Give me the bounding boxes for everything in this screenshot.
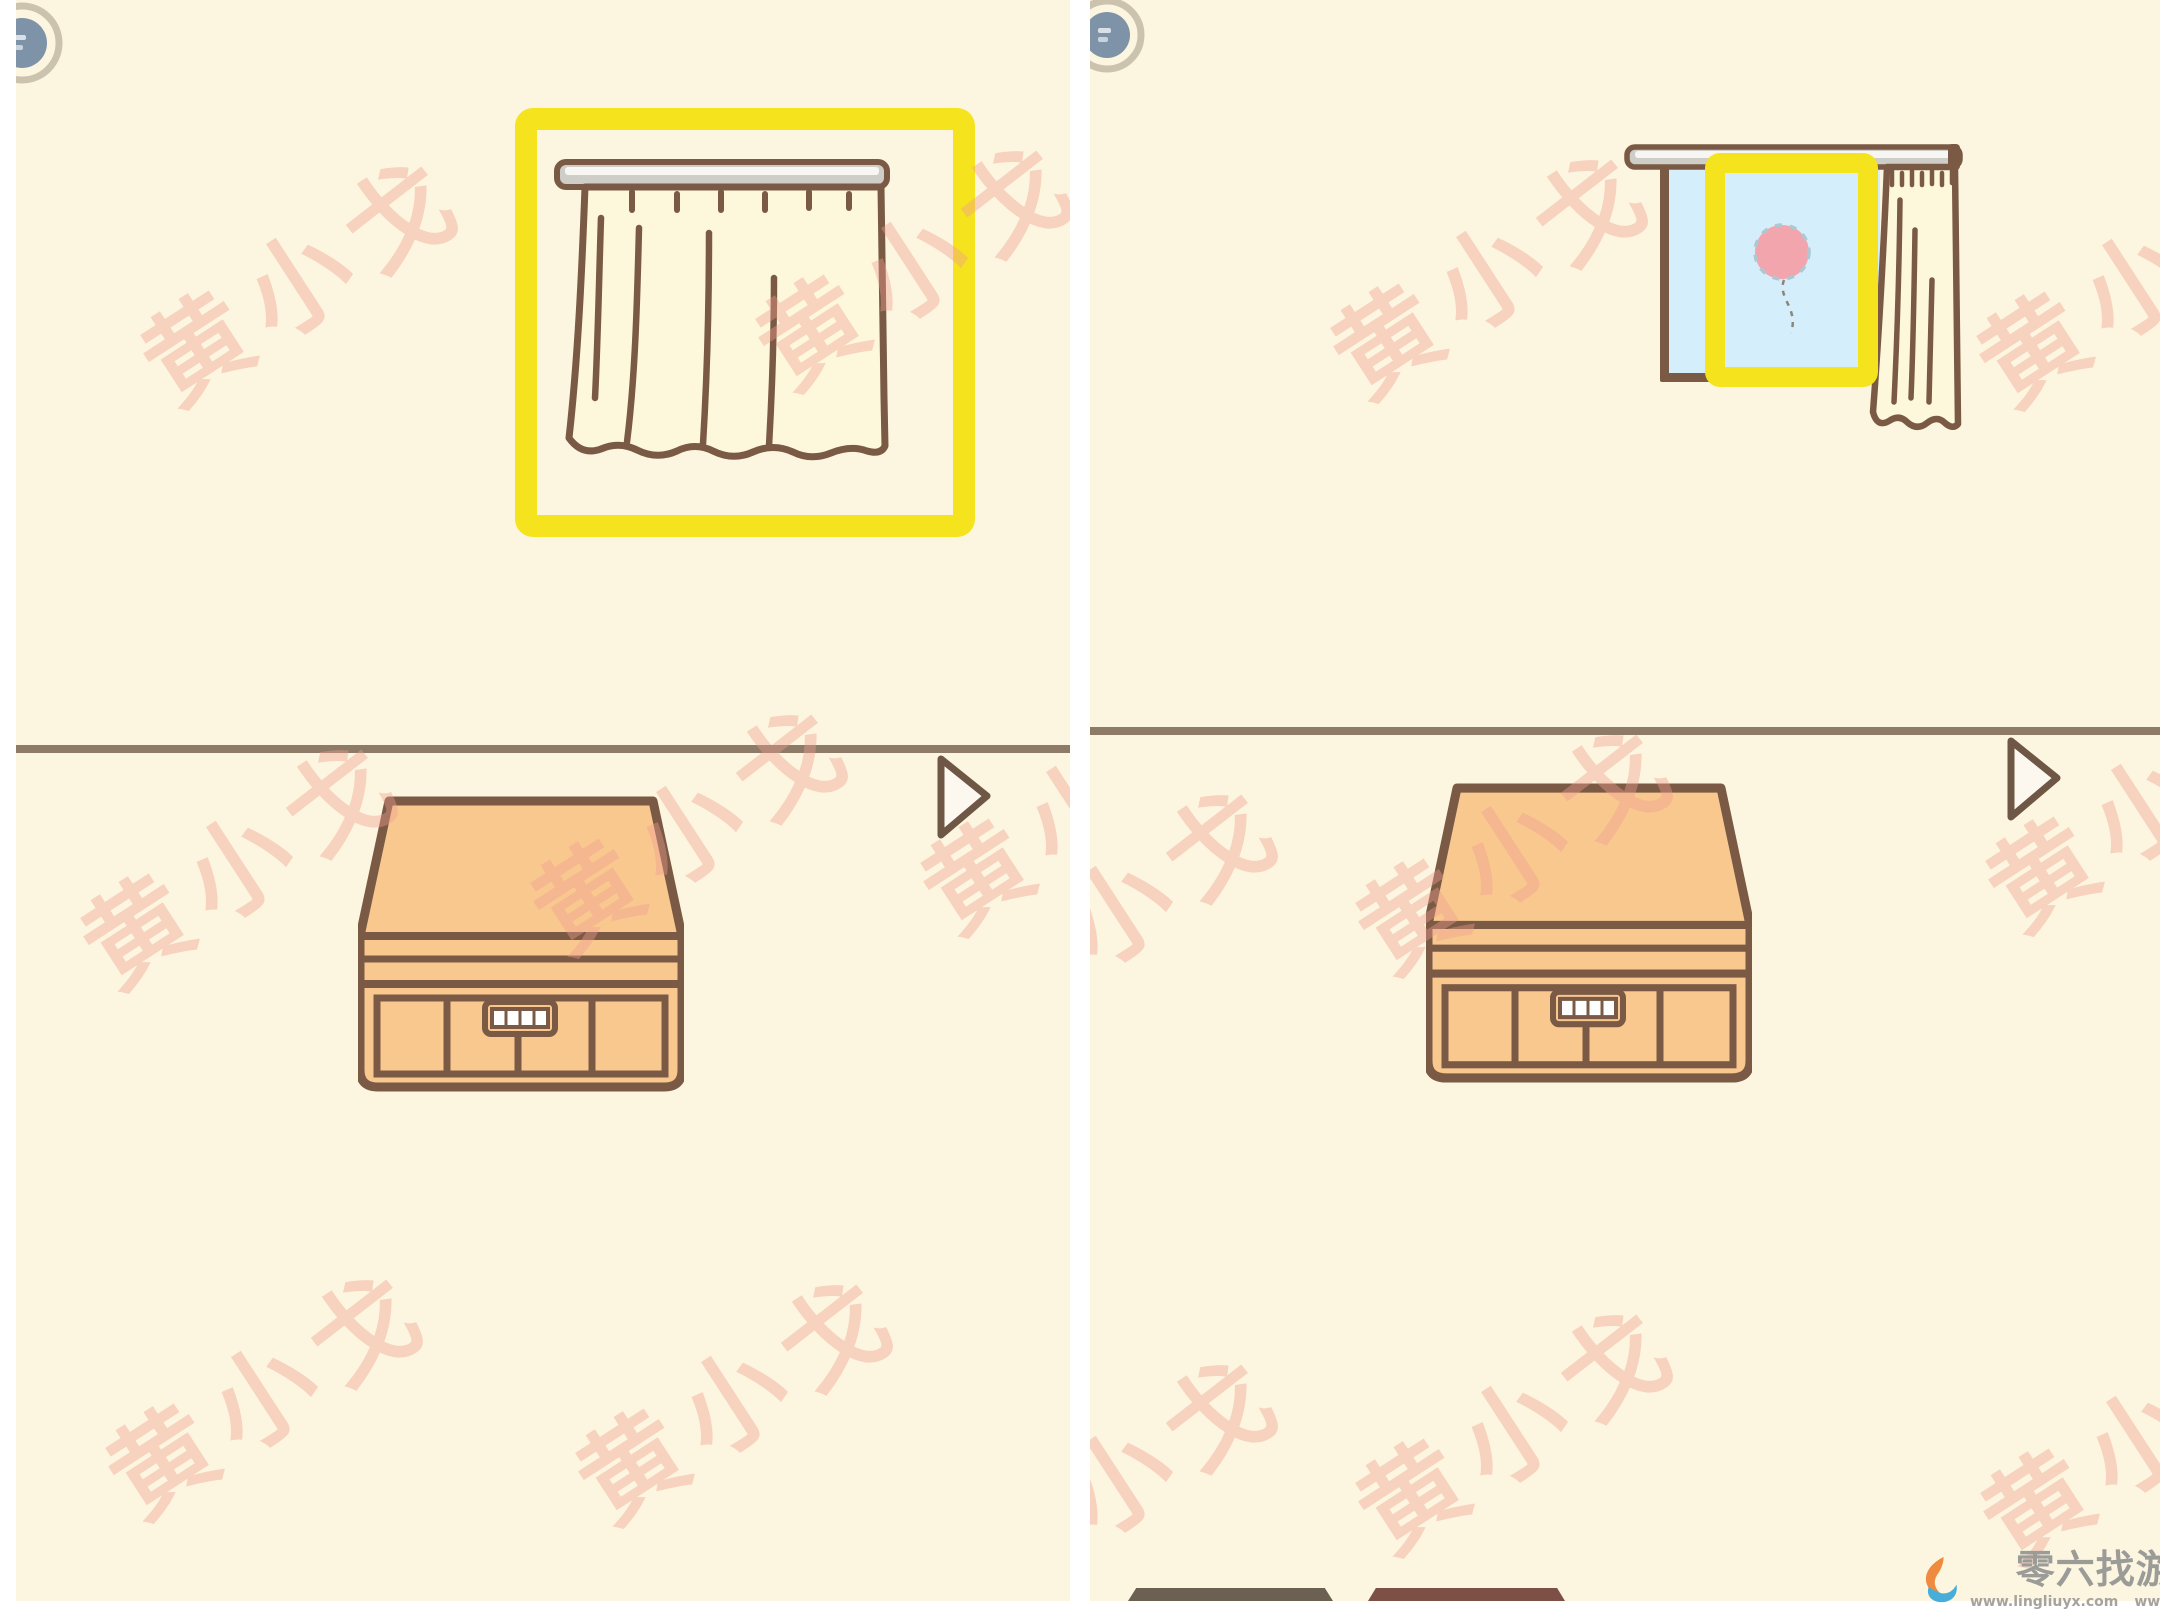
scene-divider-line (16, 745, 1070, 753)
play-triangle-icon (2011, 741, 2057, 817)
furniture-top-bar (1368, 1588, 1565, 1601)
back-level-icon[interactable] (16, 0, 112, 117)
corner-glyph (16, 45, 23, 50)
watermark-text: 黄小戈 (73, 1224, 457, 1547)
credit-url-right: www.06zyx.com (2134, 1594, 2160, 1610)
watermark-text: 黄小戈 (1944, 112, 2160, 435)
cabinet-drawing[interactable] (1426, 783, 1752, 1083)
cabinet-drawing[interactable] (358, 796, 684, 1092)
back-level-icon[interactable] (1090, 0, 1197, 109)
watermark-text: 黄小戈 (1090, 1309, 1312, 1601)
corner-circle (16, 18, 47, 68)
next-step-button[interactable] (936, 754, 994, 840)
next-step-button[interactable] (2006, 736, 2064, 822)
watermark-text: 黄小戈 (1323, 1259, 1707, 1582)
play-triangle-icon (941, 759, 987, 835)
credit-brand-name: 零六找游戏 (2016, 1550, 2160, 1593)
walkthrough-screenshot: 黄小戈黄小戈黄小戈黄小戈黄小戈黄小戈黄小戈 (0, 0, 2160, 1620)
curtain-pleat-ticks (1892, 171, 1952, 185)
panel-step-2: 黄小戈黄小戈黄小戈黄小戈黄小戈黄小戈黄小戈黄小戈 (1090, 0, 2160, 1601)
credit-url-left: www.lingliuyx.com (1970, 1594, 2118, 1610)
panel-step-1: 黄小戈黄小戈黄小戈黄小戈黄小戈黄小戈黄小戈 (16, 0, 1070, 1601)
window-frame-left (1660, 166, 1669, 381)
watermark-text: 黄小戈 (1948, 1269, 2160, 1592)
furniture-top-bar (1128, 1588, 1333, 1601)
flame-logo-icon (1916, 1554, 1962, 1606)
site-credit: 零六找游戏 www.lingliuyx.com www.06zyx.com (1916, 1550, 2160, 1610)
watermark-text: 黄小戈 (543, 1229, 927, 1552)
highlight-box-curtain[interactable] (515, 108, 975, 537)
corner-glyph (1098, 28, 1111, 33)
scene-divider-line (1090, 727, 2160, 735)
corner-glyph (1098, 37, 1108, 42)
watermark-text: 黄小戈 (1090, 739, 1312, 1062)
watermark-text: 黄小戈 (108, 111, 492, 434)
highlight-box-balloon[interactable] (1705, 153, 1878, 387)
corner-glyph (16, 35, 26, 40)
corner-circle (1090, 12, 1130, 58)
